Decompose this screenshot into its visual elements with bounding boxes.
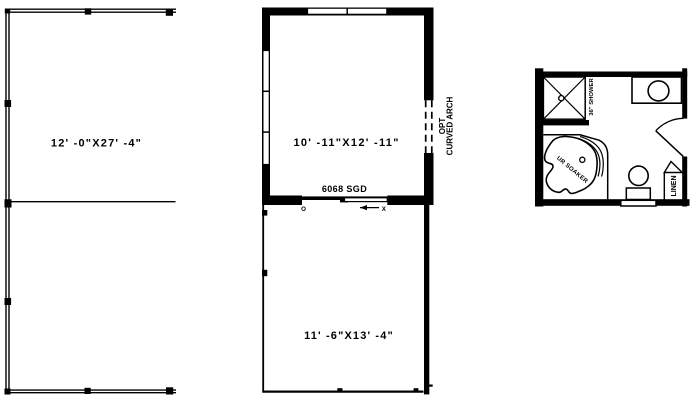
svg-text:LINEN: LINEN [671, 176, 678, 197]
svg-text:CURVED ARCH: CURVED ARCH [445, 96, 454, 155]
svg-text:36" SHOWER: 36" SHOWER [589, 78, 595, 116]
svg-text:12' -0"X27' -4": 12' -0"X27' -4" [51, 137, 142, 149]
svg-text:O: O [301, 206, 306, 213]
svg-text:6068 SGD: 6068 SGD [322, 184, 367, 194]
svg-text:10' -11"X12' -11": 10' -11"X12' -11" [293, 137, 399, 149]
svg-text:11' -6"X13' -4": 11' -6"X13' -4" [304, 330, 394, 342]
